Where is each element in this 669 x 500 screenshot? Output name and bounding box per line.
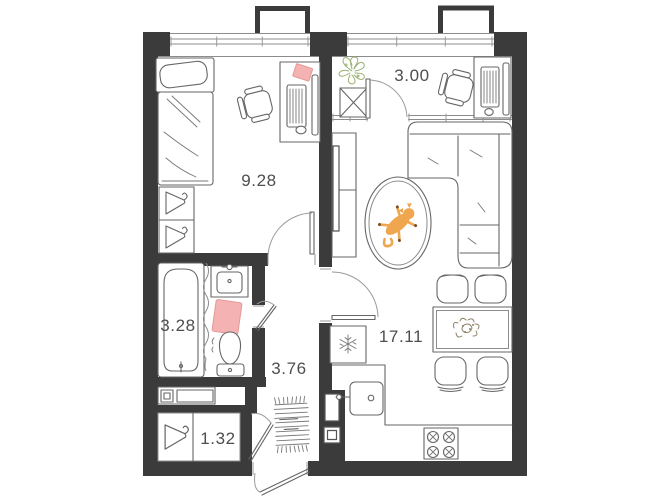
ventilation-shafts: [324, 394, 340, 443]
wall-bottom-right: [308, 461, 527, 476]
monitor: [312, 75, 318, 135]
desk-loggia: [474, 57, 511, 118]
room-label-hallway: 3.76: [271, 359, 307, 378]
wall-top-middle: [310, 32, 347, 57]
monitor: [503, 63, 509, 115]
wall-bottom-left: [143, 461, 252, 476]
mouse: [485, 109, 493, 116]
room-label-kitchen-living: 17.11: [379, 327, 423, 346]
shelf: [177, 390, 213, 402]
desk-bedroom: [280, 62, 320, 142]
stove-icon: [424, 428, 458, 459]
bathroom-sink-icon: [211, 264, 248, 297]
balcony-left-outline: [258, 9, 308, 34]
wall-right: [512, 32, 527, 476]
balcony-right-outline: [441, 8, 492, 33]
storage-box: [340, 88, 367, 117]
shaft-lower-inner: [328, 431, 337, 440]
wardrobe-rail: [159, 187, 194, 253]
room-label-loggia: 3.00: [394, 66, 430, 85]
floor-plan-page: 9.28 3.00: [0, 0, 669, 500]
room-label-wardrobe: 1.32: [200, 429, 236, 448]
room-label-bathroom: 3.28: [160, 316, 196, 335]
fridge: [330, 326, 366, 363]
tv-icon: [333, 146, 339, 231]
bed-icon: [156, 58, 214, 185]
wall-bathroom-east-upper: [252, 260, 265, 305]
floor-plan: 9.28 3.00: [0, 0, 669, 500]
mouse: [296, 126, 306, 134]
room-label-bedroom: 9.28: [241, 171, 277, 190]
niche-cabinet: [158, 387, 215, 404]
room-bathroom: 3.28: [158, 263, 248, 377]
tv-console: [332, 133, 356, 257]
dining-table: [433, 307, 512, 352]
wall-closet-east: [240, 405, 252, 461]
bath-mat: [212, 299, 242, 334]
wall-bedroom-living: [319, 54, 332, 267]
wall-bathroom-east-lower: [252, 328, 265, 385]
wall-niche-south: [143, 405, 247, 413]
